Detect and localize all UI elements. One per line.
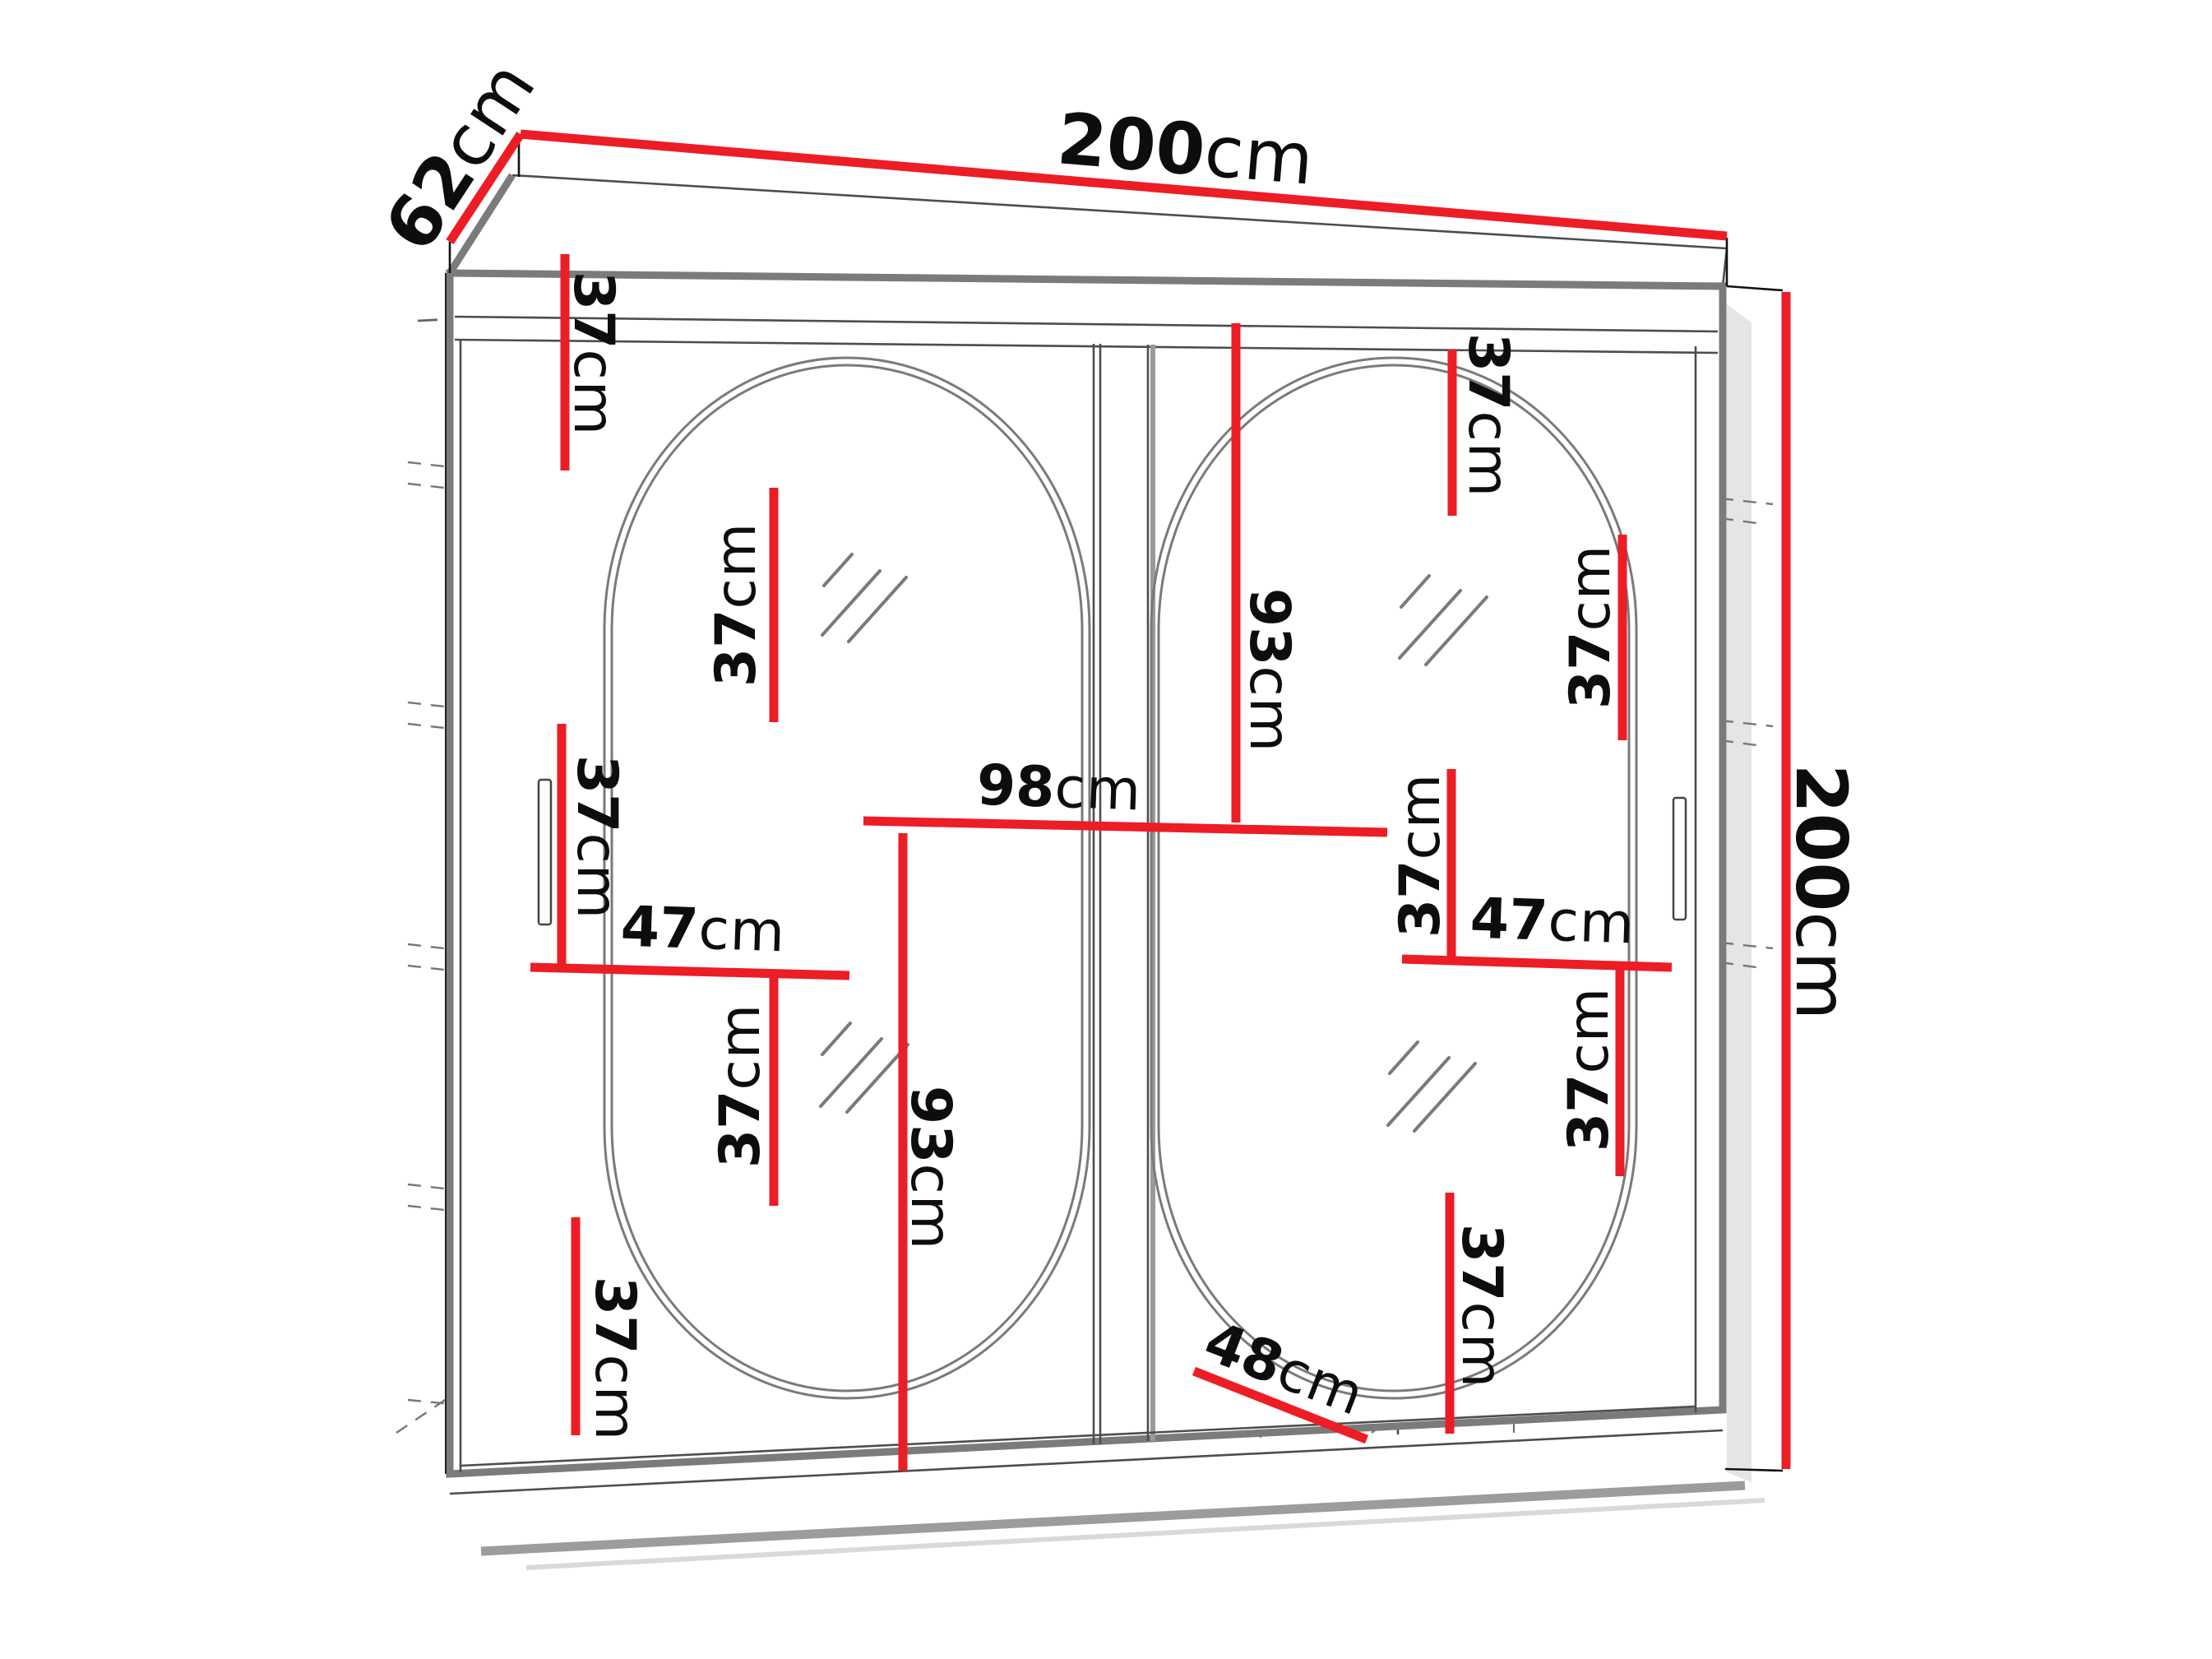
- dim-label-left-gap-3: 37cm: [565, 755, 630, 920]
- left-door-handle: [539, 780, 551, 924]
- top-panel: [450, 175, 1727, 286]
- dim-label-right-gap-1: 37cm: [1456, 333, 1521, 498]
- dim-label-left-gap-4: 37cm: [708, 1003, 773, 1168]
- dim-label-left-gap-5: 37cm: [583, 1277, 648, 1441]
- dim-label-left-gap-1: 37cm: [562, 271, 627, 436]
- dim-label-right-gap-4: 37cm: [1557, 987, 1622, 1152]
- dim-label-left-hanging-height: 93cm: [899, 1086, 964, 1250]
- wardrobe-dimension-diagram: 62cm 200cm 200cm 37cm 37cm 37cm 47cm 37c…: [0, 0, 2212, 1659]
- dim-label-right-gap-3: 37cm: [1388, 773, 1453, 938]
- right-door-handle: [1673, 798, 1686, 920]
- dim-label-center-shelf-width: 98cm: [976, 753, 1143, 823]
- dim-label-height: 200cm: [1779, 764, 1862, 1022]
- dim-label-left-shelf-width: 47cm: [620, 894, 787, 965]
- dim-label-right-hanging-height: 93cm: [1238, 588, 1303, 753]
- dim-label-right-gap-5: 37cm: [1450, 1224, 1515, 1388]
- dim-label-right-shelf-width: 47cm: [1469, 886, 1636, 957]
- dim-label-left-gap-2: 37cm: [704, 522, 769, 687]
- dim-label-right-gap-2: 37cm: [1558, 545, 1623, 709]
